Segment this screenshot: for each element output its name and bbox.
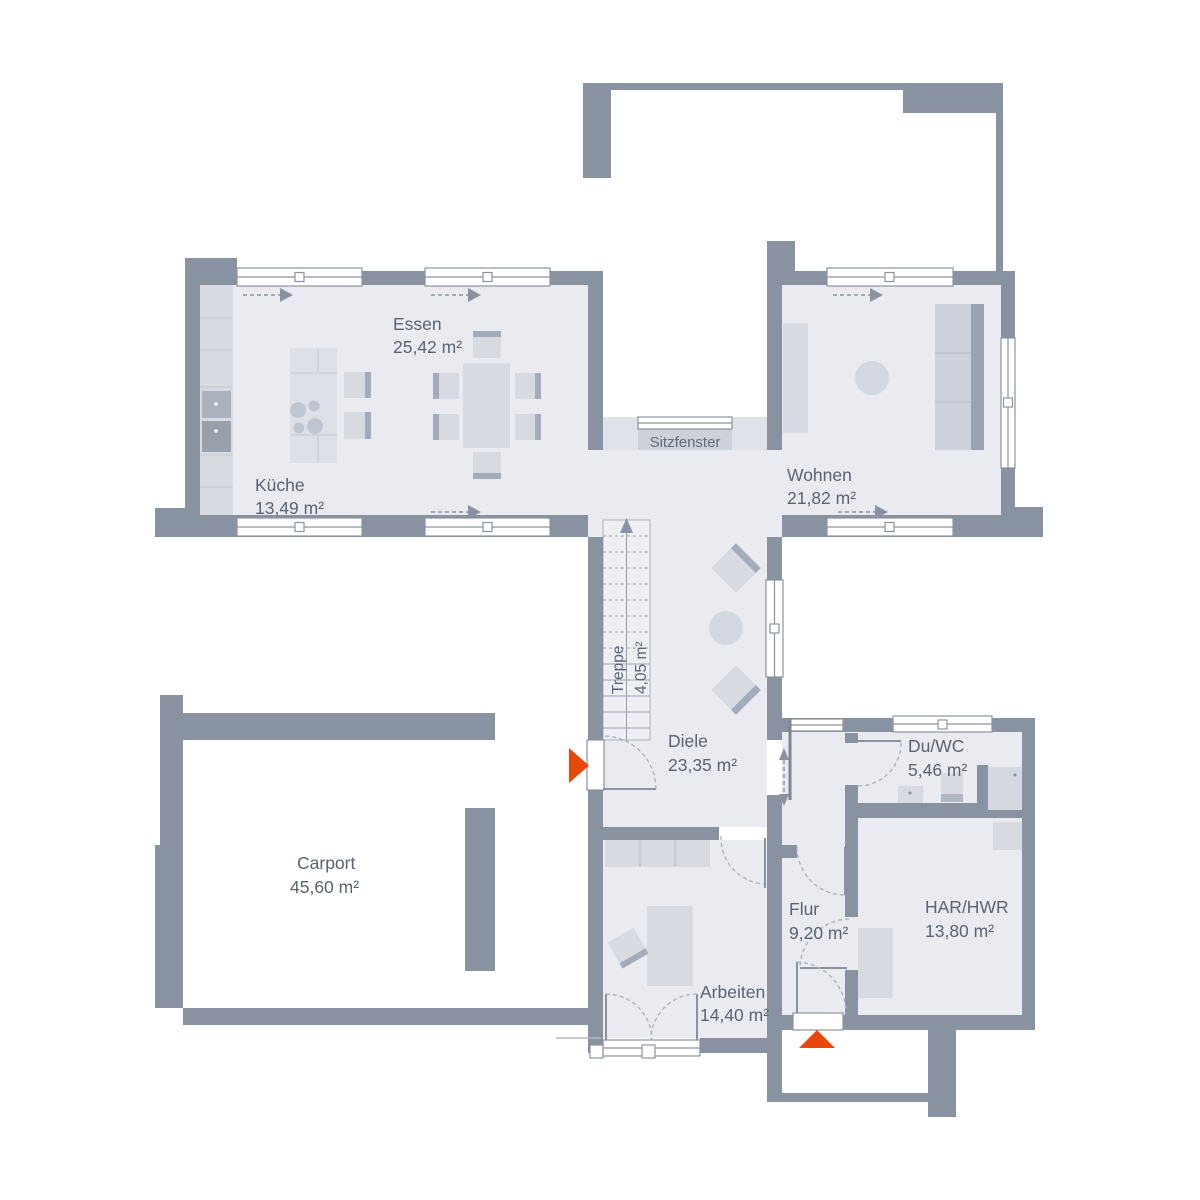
window-icon <box>827 518 953 536</box>
room-area-treppe: 4,05 m² <box>633 641 650 694</box>
floor-open-passage <box>555 450 782 537</box>
window-icon <box>237 268 362 286</box>
porch-post <box>642 1045 655 1058</box>
room-area-essen: 25,42 m² <box>393 337 462 357</box>
desk <box>647 906 693 986</box>
kitchen-appliance <box>202 421 231 452</box>
main-entrance-arrow-icon <box>569 748 589 783</box>
room-label-essen: Essen <box>393 314 442 334</box>
room-label-wohnen: Wohnen <box>787 465 852 485</box>
room-area-diele: 23,35 m² <box>668 755 737 775</box>
toilet <box>898 786 923 803</box>
window-icon <box>893 716 992 732</box>
side-table <box>709 611 743 645</box>
room-area-wohnen: 21,82 m² <box>787 488 856 508</box>
room-label-harhwr: HAR/HWR <box>925 897 1009 917</box>
room-label-diele: Diele <box>668 731 708 751</box>
har-appliance <box>993 822 1023 850</box>
kitchen-counter <box>200 285 233 527</box>
room-area-carport: 45,60 m² <box>290 877 359 897</box>
south-entrance-arrow-icon <box>799 1030 835 1048</box>
sideboard <box>783 323 808 433</box>
room-label-treppe: Treppe <box>610 645 627 694</box>
washer <box>858 928 893 998</box>
label-sitzfenster: Sitzfenster <box>650 434 721 451</box>
room-area-kueche: 13,49 m² <box>255 498 324 518</box>
room-label-flur: Flur <box>789 899 819 919</box>
room-label-arbeiten: Arbeiten <box>700 982 765 1002</box>
room-area-flur: 9,20 m² <box>789 923 848 943</box>
kitchen-island <box>290 348 337 463</box>
window-icon <box>425 268 550 286</box>
floorplan-canvas: Essen 25,42 m² Küche 13,49 m² Wohnen 21,… <box>0 0 1200 1200</box>
room-area-harhwr: 13,80 m² <box>925 921 994 941</box>
room-area-arbeiten: 14,40 m² <box>700 1005 769 1025</box>
room-label-duwc: Du/WC <box>908 736 964 756</box>
carport-pillar <box>465 808 495 971</box>
shower <box>988 767 1022 813</box>
window-icon <box>425 518 550 536</box>
room-label-carport: Carport <box>297 853 355 873</box>
floorplan-svg: Essen 25,42 m² Küche 13,49 m² Wohnen 21,… <box>0 0 1200 1200</box>
window-icon <box>237 518 362 536</box>
stairs <box>603 518 650 740</box>
window-icon <box>638 417 732 429</box>
coffee-table <box>855 361 889 395</box>
room-label-kueche: Küche <box>255 475 305 495</box>
window-icon <box>827 268 953 286</box>
window-icon <box>790 719 843 731</box>
sofa <box>935 304 984 450</box>
porch-post <box>590 1045 603 1058</box>
window-icon <box>1001 338 1015 468</box>
cupboard-row <box>605 840 710 867</box>
window-icon <box>766 580 783 677</box>
room-area-duwc: 5,46 m² <box>908 760 967 780</box>
